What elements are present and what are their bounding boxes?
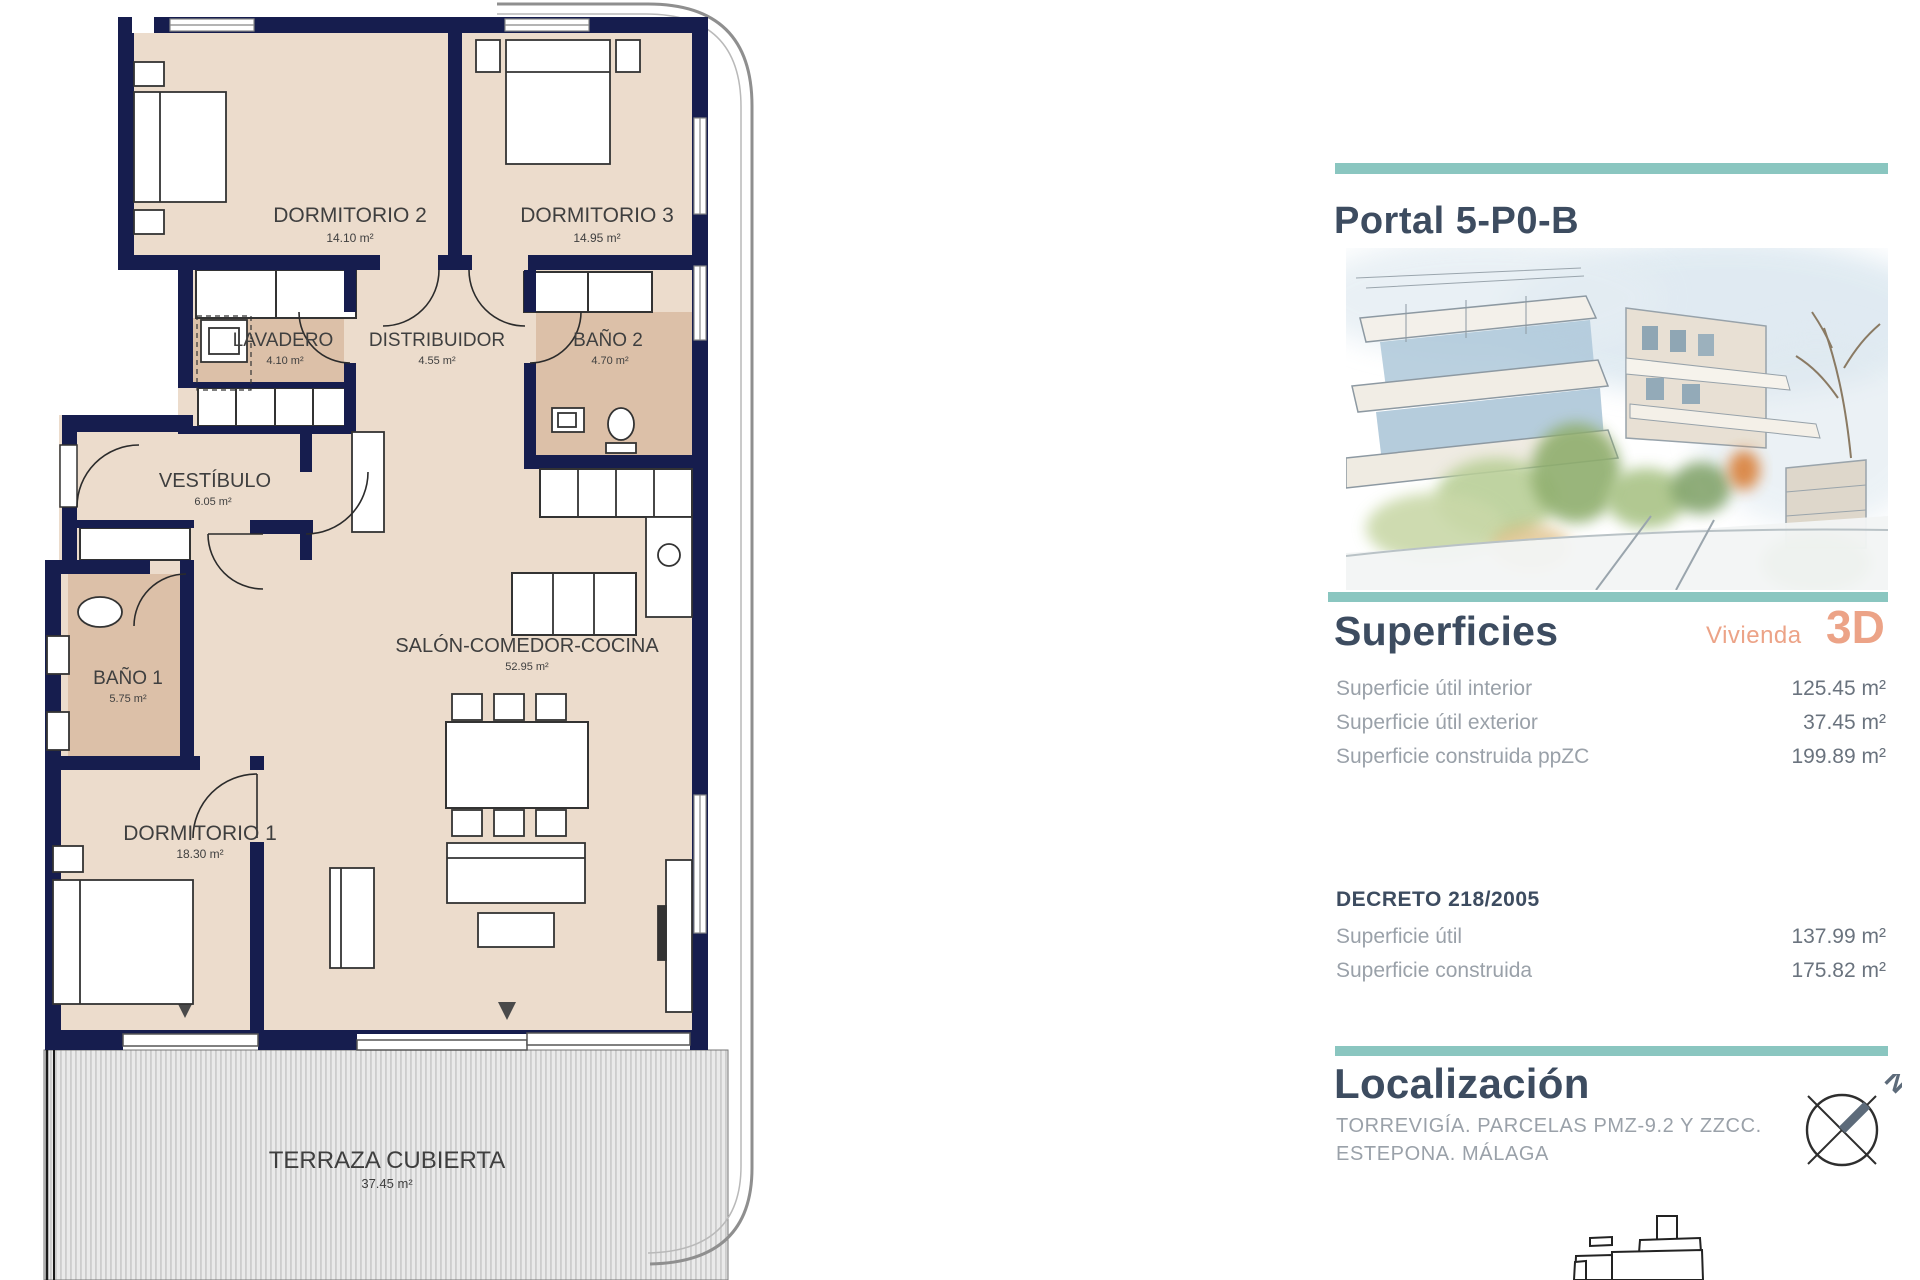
row-label: Superficie útil interior [1336,672,1532,706]
page-title: Portal 5-P0-B [1334,200,1579,243]
room-area-terraza: 37.45 m² [361,1176,413,1191]
compass-north-label: N [1879,1074,1902,1099]
vivienda-label: Vivienda [1706,622,1802,650]
row-label: Superficie construida [1336,954,1532,988]
table-row: Superficie construida ppZC 199.89 m² [1336,740,1886,774]
row-value: 37.45 m² [1803,706,1886,740]
table-row: Superficie útil 137.99 m² [1336,920,1886,954]
room-label-distribuidor: DISTRIBUIDOR [369,330,505,351]
row-value: 199.89 m² [1791,740,1886,774]
superficies-heading: Superficies [1334,608,1558,655]
address-line-2: ESTEPONA. MÁLAGA [1336,1140,1549,1168]
room-area-vestibulo: 6.05 m² [194,496,232,508]
superficies-table: Superficie útil interior 125.45 m² Super… [1336,672,1886,774]
room-label-bano-1: BAÑO 1 [93,667,163,689]
row-label: Superficie útil [1336,920,1462,954]
room-label-bano-2: BAÑO 2 [573,329,643,351]
room-area-distribuidor: 4.55 m² [418,355,456,367]
address-line-1: TORREVIGÍA. PARCELAS PMZ-9.2 Y ZZCC. [1336,1112,1762,1140]
room-area-bano-2: 4.70 m² [591,355,629,367]
page: DORMITORIO 2 14.10 m² DORMITORIO 3 14.95… [0,0,1920,1280]
floor-plan: DORMITORIO 2 14.10 m² DORMITORIO 3 14.95… [0,0,770,1280]
room-label-vestibulo: VESTÍBULO [159,469,271,492]
row-label: Superficie útil exterior [1336,706,1538,740]
teal-divider-localizacion [1335,1046,1888,1056]
wall-gap [132,17,154,33]
room-area-bano-1: 5.75 m² [109,693,147,705]
localizacion-heading: Localización [1334,1060,1590,1108]
room-label-terraza: TERRAZA CUBIERTA [269,1147,505,1174]
compass-icon: N [1786,1074,1902,1190]
row-value: 125.45 m² [1791,672,1886,706]
room-label-dormitorio-2: DORMITORIO 2 [273,204,427,227]
row-value: 137.99 m² [1791,920,1886,954]
teal-divider-top [1335,163,1888,174]
row-label: Superficie construida ppZC [1336,740,1589,774]
room-area-dormitorio-3: 14.95 m² [573,231,620,245]
table-row: Superficie útil interior 125.45 m² [1336,672,1886,706]
room-label-dormitorio-3: DORMITORIO 3 [520,204,674,227]
teal-divider-superficies [1328,592,1888,602]
room-label-dormitorio-1: DORMITORIO 1 [123,822,277,845]
room-area-lavadero: 4.10 m² [266,355,304,367]
decreto-heading: DECRETO 218/2005 [1336,888,1540,912]
vivienda-3d-value: 3D [1826,600,1885,654]
decreto-table: Superficie útil 137.99 m² Superficie con… [1336,920,1886,988]
room-label-salon: SALÓN-COMEDOR-COCINA [395,634,659,657]
room-area-dormitorio-2: 14.10 m² [326,231,373,245]
table-row: Superficie útil exterior 37.45 m² [1336,706,1886,740]
table-row: Superficie construida 175.82 m² [1336,954,1886,988]
room-area-dormitorio-1: 18.30 m² [176,847,223,861]
room-area-salon: 52.95 m² [505,661,549,673]
row-value: 175.82 m² [1791,954,1886,988]
site-plan-thumbnail [1572,1212,1717,1280]
room-label-lavadero: LAVADERO [233,330,334,351]
building-rendering-image [1346,248,1888,590]
